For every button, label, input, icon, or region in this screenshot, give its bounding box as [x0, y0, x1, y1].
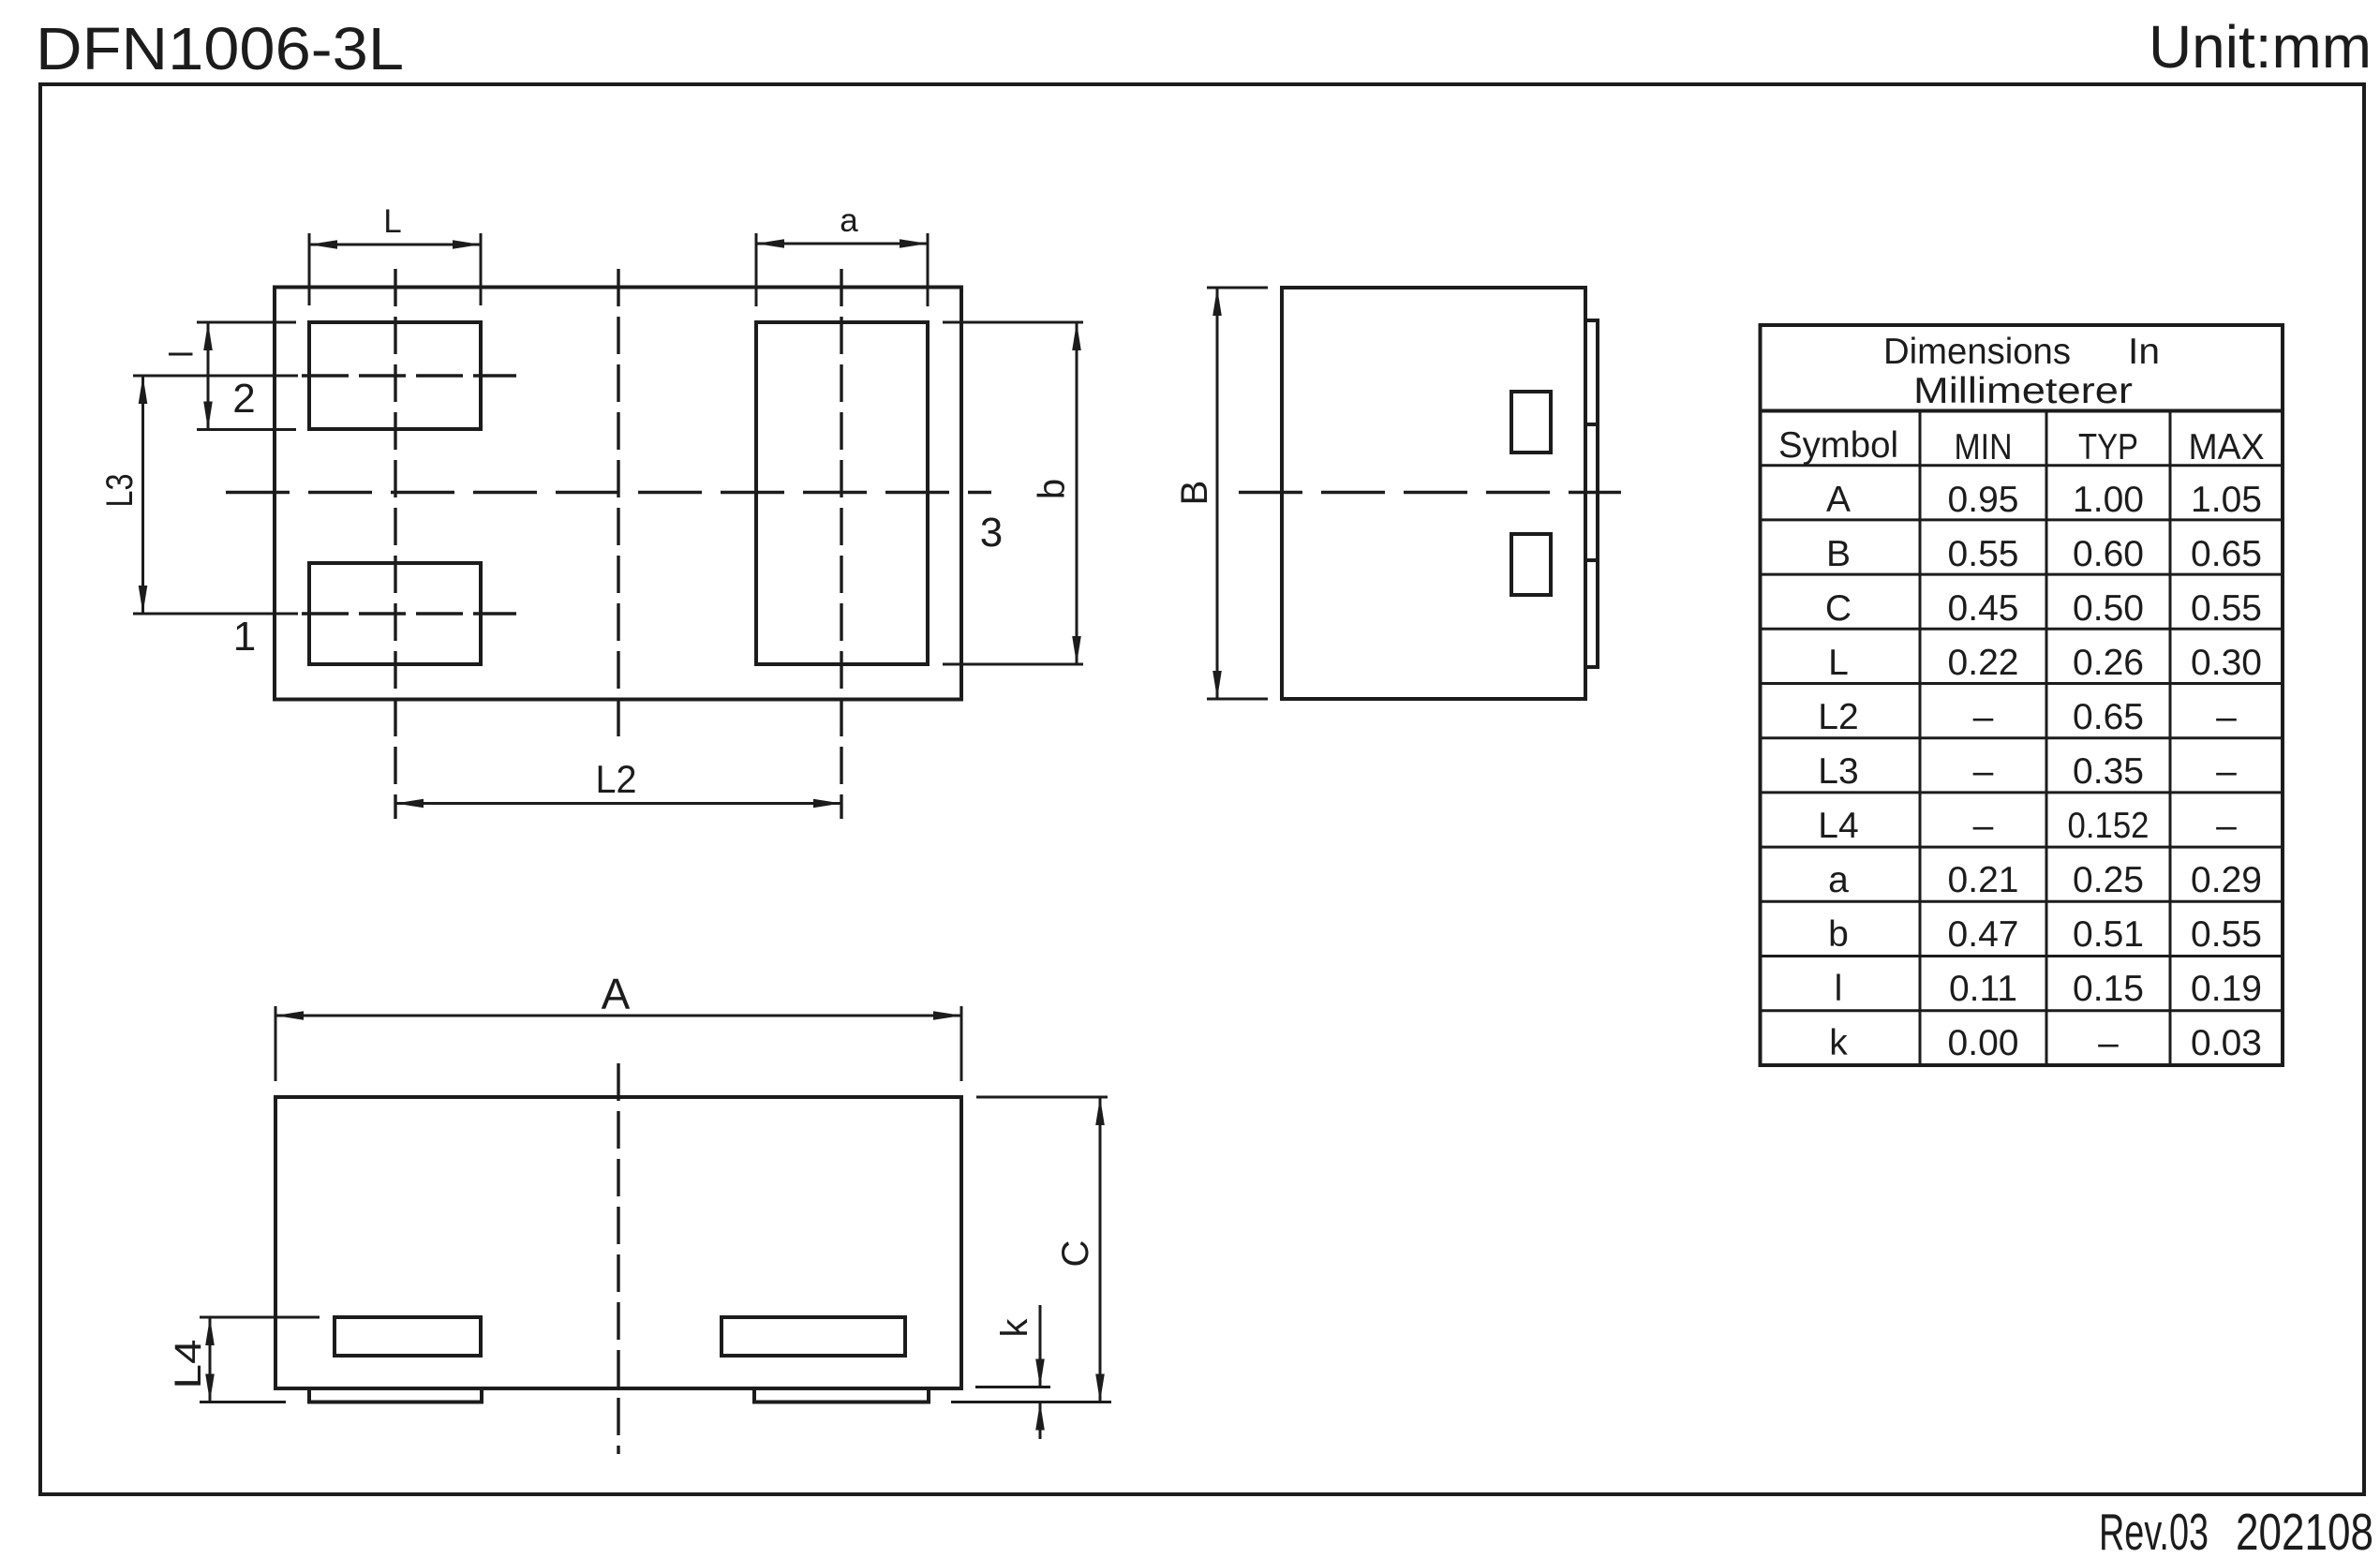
- svg-text:0.03: 0.03: [2191, 1023, 2262, 1063]
- svg-text:–: –: [2216, 751, 2237, 792]
- svg-text:Rev.03: Rev.03: [2099, 1503, 2209, 1558]
- svg-text:L4: L4: [1818, 806, 1858, 846]
- svg-text:B: B: [1826, 534, 1851, 574]
- svg-text:Unit:mm: Unit:mm: [2149, 13, 2372, 81]
- svg-text:–: –: [2216, 697, 2237, 737]
- svg-text:C: C: [1055, 1240, 1096, 1268]
- svg-text:L2: L2: [1818, 697, 1858, 737]
- svg-text:DFN1006-3L: DFN1006-3L: [36, 15, 404, 82]
- svg-text:0.50: 0.50: [2073, 588, 2144, 629]
- svg-text:L3: L3: [99, 474, 141, 508]
- svg-text:l: l: [1835, 969, 1843, 1009]
- svg-text:1: 1: [233, 614, 256, 660]
- svg-text:A: A: [602, 970, 631, 1018]
- svg-text:In: In: [2128, 332, 2160, 372]
- svg-text:1.00: 1.00: [2073, 480, 2144, 520]
- svg-text:MIN: MIN: [1955, 427, 2013, 467]
- svg-text:0.55: 0.55: [2191, 588, 2262, 629]
- svg-text:0.95: 0.95: [1948, 480, 2019, 520]
- svg-text:MAX: MAX: [2189, 427, 2265, 467]
- svg-text:1.05: 1.05: [2191, 480, 2262, 520]
- svg-text:0.29: 0.29: [2191, 860, 2262, 900]
- svg-text:0.22: 0.22: [1948, 643, 2019, 683]
- svg-text:k: k: [994, 1318, 1035, 1338]
- svg-text:0.55: 0.55: [2191, 914, 2262, 955]
- svg-text:A: A: [1826, 480, 1851, 520]
- svg-text:0.25: 0.25: [2073, 860, 2144, 900]
- svg-text:0.30: 0.30: [2191, 643, 2262, 683]
- svg-text:202108: 202108: [2236, 1503, 2373, 1558]
- svg-text:0.11: 0.11: [1949, 969, 2017, 1009]
- svg-text:–: –: [1973, 697, 1994, 737]
- svg-text:L: L: [1828, 643, 1849, 683]
- svg-text:0.35: 0.35: [2073, 751, 2144, 792]
- svg-text:Millimeterer: Millimeterer: [1913, 371, 2133, 411]
- svg-text:0.65: 0.65: [2073, 697, 2144, 737]
- svg-text:b: b: [1032, 479, 1073, 499]
- svg-text:C: C: [1825, 588, 1852, 629]
- svg-text:–: –: [1973, 751, 1994, 792]
- svg-text:k: k: [1829, 1023, 1848, 1063]
- svg-text:2: 2: [232, 376, 255, 422]
- svg-text:Dimensions: Dimensions: [1883, 332, 2071, 372]
- svg-text:Symbol: Symbol: [1778, 425, 1898, 466]
- svg-text:0.21: 0.21: [1948, 860, 2019, 900]
- svg-text:0.51: 0.51: [2073, 914, 2144, 955]
- svg-text:0.65: 0.65: [2191, 534, 2262, 574]
- svg-text:0.47: 0.47: [1948, 914, 2019, 955]
- svg-text:a: a: [1828, 860, 1849, 900]
- svg-text:l: l: [164, 350, 201, 358]
- svg-text:0.152: 0.152: [2068, 806, 2149, 846]
- svg-text:–: –: [1973, 806, 1994, 846]
- svg-text:L3: L3: [1818, 751, 1858, 792]
- svg-text:L2: L2: [596, 757, 637, 801]
- svg-text:0.60: 0.60: [2073, 534, 2144, 574]
- svg-text:0.45: 0.45: [1948, 588, 2019, 629]
- svg-text:0.00: 0.00: [1948, 1023, 2019, 1063]
- svg-text:B: B: [1174, 481, 1215, 506]
- svg-text:L4: L4: [168, 1340, 209, 1389]
- svg-text:3: 3: [980, 510, 1003, 556]
- svg-text:0.19: 0.19: [2191, 969, 2262, 1009]
- svg-text:0.55: 0.55: [1948, 534, 2019, 574]
- svg-text:–: –: [2216, 806, 2237, 846]
- svg-text:TYP: TYP: [2078, 427, 2138, 467]
- svg-text:–: –: [2098, 1023, 2119, 1063]
- svg-text:L: L: [383, 203, 401, 240]
- svg-text:a: a: [840, 202, 858, 239]
- svg-text:0.26: 0.26: [2073, 643, 2144, 683]
- svg-text:0.15: 0.15: [2073, 969, 2144, 1009]
- svg-text:b: b: [1828, 914, 1849, 955]
